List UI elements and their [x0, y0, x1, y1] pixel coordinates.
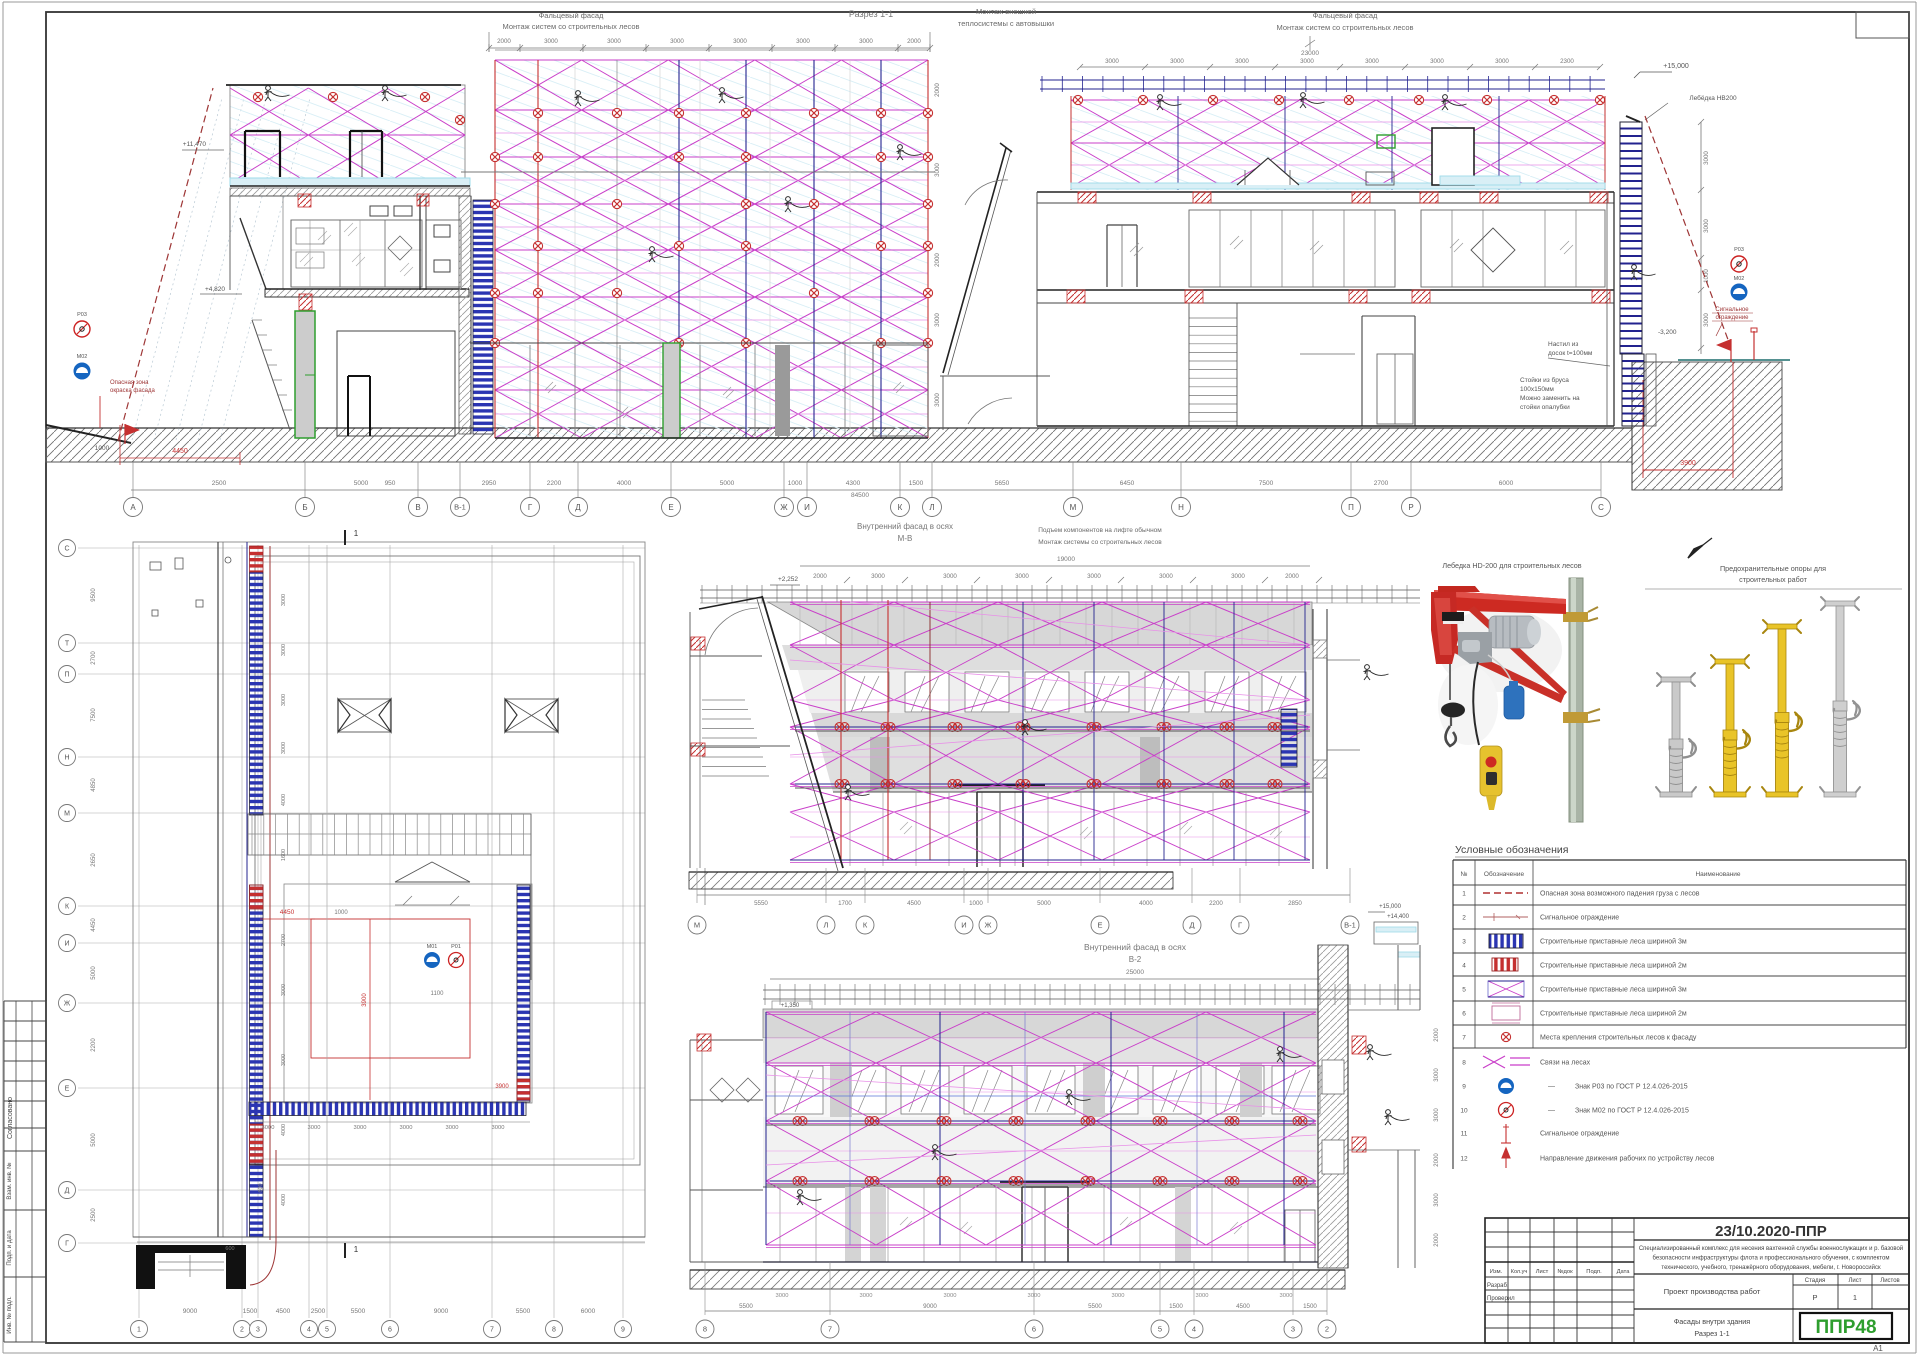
svg-text:1: 1	[1462, 891, 1466, 898]
svg-text:4: 4	[1462, 963, 1466, 970]
svg-text:Н: Н	[1178, 503, 1184, 512]
svg-text:2950: 2950	[482, 480, 497, 487]
svg-text:4000: 4000	[281, 1124, 287, 1136]
svg-text:1000: 1000	[969, 900, 983, 907]
svg-text:Р03: Р03	[1734, 247, 1744, 253]
svg-text:4000: 4000	[281, 1194, 287, 1206]
svg-text:9000: 9000	[183, 1308, 198, 1315]
svg-text:5000: 5000	[1037, 900, 1051, 907]
svg-text:И: И	[64, 941, 69, 948]
svg-text:П: П	[1348, 503, 1354, 512]
svg-text:4500: 4500	[907, 900, 921, 907]
svg-text:5550: 5550	[754, 900, 768, 907]
svg-text:3000: 3000	[670, 38, 684, 45]
svg-text:М02: М02	[1734, 276, 1745, 282]
svg-text:1000: 1000	[788, 480, 803, 487]
svg-text:25000: 25000	[1126, 969, 1144, 976]
svg-text:5: 5	[1158, 1325, 1162, 1334]
svg-text:окраска фасада: окраска фасада	[110, 388, 156, 394]
svg-text:Опасная зона возможного падени: Опасная зона возможного падения груза с …	[1540, 891, 1700, 898]
svg-text:9500: 9500	[91, 588, 97, 602]
svg-text:3900: 3900	[495, 1084, 509, 1090]
svg-text:2200: 2200	[547, 480, 562, 487]
svg-text:Проект производства работ: Проект производства работ	[1664, 1287, 1761, 1296]
svg-text:К: К	[863, 921, 868, 930]
svg-text:стойки опалубки: стойки опалубки	[1520, 403, 1570, 411]
svg-text:С: С	[64, 546, 69, 553]
svg-text:2000: 2000	[1434, 1153, 1440, 1167]
svg-text:Д: Д	[65, 1188, 70, 1195]
svg-text:3000: 3000	[776, 1293, 789, 1299]
svg-text:2000: 2000	[1285, 573, 1299, 580]
svg-text:+11,470: +11,470	[183, 141, 207, 148]
svg-text:Сигнальное ограждение: Сигнальное ограждение	[1540, 915, 1619, 922]
svg-text:Настил из: Настил из	[1548, 341, 1578, 348]
svg-text:К: К	[898, 503, 903, 512]
svg-text:3000: 3000	[446, 1125, 459, 1131]
svg-text:9000: 9000	[923, 1303, 937, 1310]
svg-text:4000: 4000	[281, 794, 287, 806]
svg-text:Связи на лесах: Связи на лесах	[1540, 1060, 1591, 1067]
svg-text:Лист: Лист	[1848, 1278, 1861, 1284]
svg-text:5500: 5500	[516, 1308, 531, 1315]
svg-text:2200: 2200	[91, 1038, 97, 1052]
svg-text:Взам. инв. №: Взам. инв. №	[6, 1162, 13, 1199]
svg-text:950: 950	[385, 480, 396, 487]
svg-text:2000: 2000	[934, 83, 941, 97]
svg-text:Лебедка HD-200 для строительны: Лебедка HD-200 для строительных лесов	[1442, 561, 1581, 570]
svg-text:Р01: Р01	[451, 944, 461, 950]
svg-text:Г: Г	[65, 1241, 69, 1248]
svg-text:4450: 4450	[280, 909, 295, 916]
svg-text:М: М	[694, 921, 700, 930]
svg-text:Фасады внутри здания: Фасады внутри здания	[1674, 1317, 1750, 1326]
svg-text:2000: 2000	[934, 253, 941, 267]
svg-text:7: 7	[490, 1327, 494, 1334]
svg-text:М: М	[64, 811, 70, 818]
svg-text:4850: 4850	[91, 778, 97, 792]
svg-text:И: И	[961, 921, 966, 930]
svg-text:+4,820: +4,820	[205, 286, 225, 293]
svg-text:+1,350: +1,350	[781, 1003, 800, 1009]
svg-text:3900: 3900	[362, 993, 368, 1007]
svg-text:Места крепления строительных л: Места крепления строительных лесов к фас…	[1540, 1035, 1697, 1042]
svg-text:2200: 2200	[1209, 900, 1223, 907]
svg-text:3000: 3000	[262, 1125, 275, 1131]
svg-text:Обозначение: Обозначение	[1484, 870, 1525, 878]
svg-text:3000: 3000	[934, 393, 941, 407]
svg-text:технического, учебного, тренаж: технического, учебного, тренажёрного обо…	[1661, 1264, 1881, 1271]
svg-text:Ж: Ж	[780, 503, 788, 512]
svg-text:12: 12	[1460, 1156, 1468, 1163]
svg-text:Стадия: Стадия	[1805, 1278, 1825, 1284]
svg-text:Изм.: Изм.	[1490, 1269, 1503, 1275]
svg-text:Стойки из бруса: Стойки из бруса	[1520, 376, 1569, 384]
svg-text:7: 7	[1462, 1035, 1466, 1042]
svg-text:1000: 1000	[95, 445, 110, 452]
svg-text:строительных работ: строительных работ	[1739, 575, 1807, 584]
svg-text:3000: 3000	[1430, 58, 1444, 65]
svg-text:Инв. № подл.: Инв. № подл.	[6, 1296, 13, 1334]
svg-text:5500: 5500	[1088, 1303, 1102, 1310]
svg-text:3000: 3000	[492, 1125, 505, 1131]
svg-text:4: 4	[307, 1327, 311, 1334]
svg-text:2650: 2650	[91, 853, 97, 867]
svg-text:1500: 1500	[909, 480, 924, 487]
svg-text:2000: 2000	[813, 573, 827, 580]
svg-text:Б: Б	[302, 503, 307, 512]
svg-text:Д: Д	[1189, 921, 1194, 930]
svg-text:Монтаж системы со строительных: Монтаж системы со строительных лесов	[1038, 539, 1162, 546]
svg-text:Строительные приставные леса ш: Строительные приставные леса шириной 3м	[1540, 986, 1687, 994]
svg-text:2000: 2000	[1434, 1233, 1440, 1247]
svg-text:+14,400: +14,400	[1387, 914, 1410, 920]
svg-text:10: 10	[1460, 1108, 1468, 1115]
svg-text:Наименование: Наименование	[1695, 871, 1740, 878]
svg-text:—: —	[1548, 1084, 1555, 1091]
svg-text:3000: 3000	[607, 38, 621, 45]
svg-text:Р: Р	[1812, 1293, 1817, 1302]
svg-text:1: 1	[1853, 1293, 1857, 1302]
svg-text:Строительные приставные леса ш: Строительные приставные леса шириной 2м	[1540, 962, 1687, 970]
svg-text:2500: 2500	[311, 1308, 326, 1315]
svg-text:5: 5	[1462, 987, 1466, 994]
svg-text:2: 2	[1325, 1325, 1329, 1334]
svg-text:3000: 3000	[934, 313, 941, 327]
svg-text:Г: Г	[528, 503, 533, 512]
svg-text:В: В	[415, 503, 420, 512]
svg-text:1000: 1000	[334, 910, 348, 916]
svg-text:3000: 3000	[281, 694, 287, 706]
svg-text:3000: 3000	[400, 1125, 413, 1131]
svg-text:4000: 4000	[1139, 900, 1153, 907]
svg-text:Монтаж систем со строительных: Монтаж систем со строительных лесов	[1277, 23, 1414, 32]
svg-text:Д: Д	[575, 503, 581, 512]
svg-text:6000: 6000	[581, 1308, 596, 1315]
svg-text:Листов: Листов	[1880, 1278, 1900, 1284]
svg-text:1700: 1700	[838, 900, 852, 907]
svg-text:2850: 2850	[1288, 900, 1302, 907]
svg-text:3000: 3000	[1434, 1108, 1440, 1122]
svg-text:5000: 5000	[91, 966, 97, 980]
svg-text:3: 3	[256, 1327, 260, 1334]
svg-text:3000: 3000	[281, 594, 287, 606]
svg-text:3000: 3000	[1703, 313, 1710, 327]
svg-text:Проверил: Проверил	[1487, 1296, 1515, 1302]
svg-text:Можно заменить на: Можно заменить на	[1520, 395, 1580, 402]
svg-text:2500: 2500	[212, 480, 227, 487]
svg-text:11: 11	[1461, 1131, 1468, 1138]
svg-text:3000: 3000	[860, 1293, 873, 1299]
svg-text:Согласовано: Согласовано	[7, 1097, 14, 1139]
svg-text:1500: 1500	[1169, 1303, 1183, 1310]
svg-text:Л: Л	[824, 921, 829, 930]
svg-text:Знак Р03 по ГОСТ Р 12.4.026-20: Знак Р03 по ГОСТ Р 12.4.026-2015	[1575, 1084, 1688, 1091]
svg-text:3000: 3000	[1231, 573, 1245, 580]
svg-text:3000: 3000	[1170, 58, 1184, 65]
svg-text:4300: 4300	[846, 480, 861, 487]
svg-text:2000: 2000	[1434, 1028, 1440, 1042]
svg-text:6000: 6000	[1499, 480, 1514, 487]
svg-text:теплосистемы с автовышки: теплосистемы с автовышки	[958, 19, 1054, 28]
svg-text:3000: 3000	[943, 573, 957, 580]
svg-text:3000: 3000	[1159, 573, 1173, 580]
svg-text:досок t=100мм: досок t=100мм	[1548, 350, 1593, 357]
svg-text:8: 8	[703, 1325, 707, 1334]
svg-text:Ж: Ж	[64, 1001, 71, 1008]
svg-text:3000: 3000	[1703, 151, 1710, 165]
svg-text:3000: 3000	[944, 1293, 957, 1299]
svg-text:3000: 3000	[1196, 1293, 1209, 1299]
svg-text:Фальцевый фасад: Фальцевый фасад	[1313, 11, 1378, 20]
svg-text:Знак М02 по ГОСТ Р 12.4.026-20: Знак М02 по ГОСТ Р 12.4.026-2015	[1575, 1108, 1689, 1115]
svg-text:3000: 3000	[934, 163, 941, 177]
svg-text:4450: 4450	[91, 918, 97, 932]
svg-text:6450: 6450	[1120, 480, 1135, 487]
svg-text:7500: 7500	[91, 708, 97, 722]
svg-text:Лебёдка НВ200: Лебёдка НВ200	[1689, 94, 1737, 102]
svg-text:3000: 3000	[281, 742, 287, 754]
svg-text:2300: 2300	[1560, 58, 1574, 65]
svg-text:3000: 3000	[544, 38, 558, 45]
svg-text:М-В: М-В	[898, 534, 913, 543]
svg-text:+15,000: +15,000	[1663, 63, 1689, 70]
svg-text:100х150мм: 100х150мм	[1520, 386, 1554, 393]
svg-text:Строительные приставные леса ш: Строительные приставные леса шириной 3м	[1540, 938, 1687, 946]
svg-text:Сигнальное ограждение: Сигнальное ограждение	[1540, 1131, 1619, 1138]
svg-text:Е: Е	[668, 503, 673, 512]
svg-text:П: П	[64, 672, 69, 679]
svg-text:6: 6	[388, 1327, 392, 1334]
svg-text:Условные обозначения: Условные обозначения	[1455, 844, 1568, 856]
svg-text:А1: А1	[1873, 1344, 1883, 1353]
svg-text:Предохранительные опоры для: Предохранительные опоры для	[1720, 564, 1826, 573]
svg-text:5500: 5500	[351, 1308, 366, 1315]
svg-text:Е: Е	[65, 1086, 70, 1093]
svg-text:А: А	[130, 503, 136, 512]
svg-text:Монтаж систем со строительных: Монтаж систем со строительных лесов	[503, 22, 640, 31]
svg-text:2500: 2500	[91, 1208, 97, 1222]
svg-text:4500: 4500	[276, 1308, 291, 1315]
svg-text:9: 9	[621, 1327, 625, 1334]
svg-text:3000: 3000	[859, 38, 873, 45]
svg-text:Монтаж внешней: Монтаж внешней	[976, 7, 1036, 16]
svg-text:2700: 2700	[1374, 480, 1389, 487]
svg-text:1500: 1500	[1303, 1303, 1317, 1310]
svg-text:23/10.2020-ППР: 23/10.2020-ППР	[1715, 1223, 1827, 1240]
svg-text:3000: 3000	[1105, 58, 1119, 65]
svg-text:Р03: Р03	[77, 312, 87, 318]
svg-text:Внутренний фасад в осях: Внутренний фасад в осях	[1084, 942, 1187, 952]
svg-text:5000: 5000	[91, 1133, 97, 1147]
svg-text:8: 8	[552, 1327, 556, 1334]
svg-text:1: 1	[354, 1245, 359, 1254]
svg-text:3000: 3000	[1280, 1293, 1293, 1299]
svg-text:3000: 3000	[1235, 58, 1249, 65]
svg-text:5650: 5650	[995, 480, 1010, 487]
svg-text:3000: 3000	[1703, 219, 1710, 233]
svg-text:И: И	[804, 503, 810, 512]
svg-text:84500: 84500	[851, 492, 869, 499]
svg-text:4000: 4000	[617, 480, 632, 487]
svg-text:Строительные приставные леса ш: Строительные приставные леса шириной 2м	[1540, 1010, 1687, 1018]
svg-text:М02: М02	[77, 354, 88, 360]
svg-text:1: 1	[354, 529, 359, 538]
svg-text:600: 600	[258, 1183, 264, 1192]
svg-text:3900: 3900	[1680, 460, 1696, 467]
svg-text:3: 3	[1462, 939, 1466, 946]
svg-text:3000: 3000	[1434, 1068, 1440, 1082]
svg-text:6: 6	[1462, 1011, 1466, 1018]
svg-text:М01: М01	[427, 944, 438, 950]
svg-text:3000: 3000	[281, 644, 287, 656]
svg-text:В-1: В-1	[1344, 921, 1356, 930]
svg-text:5500: 5500	[739, 1303, 753, 1310]
svg-text:Е: Е	[1097, 921, 1102, 930]
svg-text:+2,252: +2,252	[778, 576, 798, 583]
svg-text:Опасная зона: Опасная зона	[110, 380, 149, 386]
svg-text:М: М	[1070, 503, 1077, 512]
svg-text:1: 1	[137, 1327, 141, 1334]
svg-text:3000: 3000	[1300, 58, 1314, 65]
svg-text:3000: 3000	[1495, 58, 1509, 65]
svg-text:4: 4	[1192, 1325, 1196, 1334]
svg-text:ППР48: ППР48	[1815, 1317, 1876, 1338]
svg-text:7500: 7500	[1259, 480, 1274, 487]
svg-text:3000: 3000	[733, 38, 747, 45]
svg-text:Разрез 1-1: Разрез 1-1	[1694, 1329, 1729, 1338]
svg-text:2: 2	[240, 1327, 244, 1334]
svg-text:+15,000: +15,000	[1379, 904, 1402, 910]
svg-text:6: 6	[1032, 1325, 1036, 1334]
svg-text:5: 5	[325, 1327, 329, 1334]
svg-text:3000: 3000	[1434, 1193, 1440, 1207]
svg-text:С: С	[1598, 503, 1604, 512]
svg-text:Дата: Дата	[1617, 1269, 1631, 1275]
svg-text:Ж: Ж	[985, 921, 992, 930]
svg-text:3000: 3000	[1365, 58, 1379, 65]
svg-text:3: 3	[1291, 1325, 1295, 1334]
svg-text:3000: 3000	[354, 1125, 367, 1131]
svg-text:19000: 19000	[1057, 556, 1075, 563]
svg-text:В-2: В-2	[1129, 955, 1142, 964]
svg-text:В-1: В-1	[454, 503, 466, 512]
svg-text:Фальцевый фасад: Фальцевый фасад	[539, 11, 604, 20]
svg-text:8: 8	[1462, 1060, 1466, 1067]
svg-text:№док: №док	[1557, 1269, 1573, 1275]
svg-text:Г: Г	[1238, 921, 1242, 930]
svg-text:4500: 4500	[1236, 1303, 1250, 1310]
svg-text:Сигнальное: Сигнальное	[1715, 307, 1749, 313]
svg-text:Н: Н	[64, 755, 69, 762]
svg-text:Л: Л	[929, 503, 934, 512]
svg-text:600: 600	[225, 1246, 234, 1252]
svg-text:Кол.уч: Кол.уч	[1511, 1269, 1528, 1275]
svg-text:9: 9	[1462, 1084, 1466, 1091]
svg-text:9000: 9000	[434, 1308, 449, 1315]
svg-text:Р: Р	[1408, 503, 1413, 512]
svg-text:Подп.: Подп.	[1586, 1269, 1602, 1275]
svg-text:5000: 5000	[720, 480, 735, 487]
svg-text:7: 7	[828, 1325, 832, 1334]
svg-text:-3,200: -3,200	[1658, 329, 1677, 336]
svg-text:Разраб.: Разраб.	[1487, 1283, 1509, 1289]
svg-text:Подп. и дата: Подп. и дата	[7, 1230, 13, 1266]
svg-text:Специализированный комплекс дл: Специализированный комплекс для несения …	[1639, 1245, 1903, 1252]
svg-text:5000: 5000	[354, 480, 369, 487]
svg-text:Лист: Лист	[1536, 1269, 1549, 1275]
svg-text:1100: 1100	[431, 991, 445, 997]
svg-text:3000: 3000	[308, 1125, 321, 1131]
svg-text:2: 2	[1462, 915, 1466, 922]
svg-text:Направление движения рабочих п: Направление движения рабочих по устройст…	[1540, 1155, 1715, 1163]
svg-text:4450: 4450	[172, 448, 188, 455]
svg-text:Подъем компонентов на лифте об: Подъем компонентов на лифте обычном	[1038, 526, 1162, 534]
svg-text:3000: 3000	[796, 38, 810, 45]
svg-text:23000: 23000	[1301, 50, 1319, 57]
svg-text:2700: 2700	[91, 651, 97, 665]
svg-text:2000: 2000	[497, 38, 511, 45]
svg-text:безопасности инфраструктуры фл: безопасности инфраструктуры флота и проф…	[1653, 1256, 1890, 1262]
svg-text:2000: 2000	[907, 38, 921, 45]
svg-text:№: №	[1461, 871, 1468, 878]
svg-text:1500: 1500	[243, 1308, 258, 1315]
svg-text:Т: Т	[65, 641, 70, 648]
svg-text:3000: 3000	[871, 573, 885, 580]
svg-text:Внутренний фасад в осях: Внутренний фасад в осях	[857, 522, 953, 531]
svg-text:3000: 3000	[1087, 573, 1101, 580]
svg-text:3000: 3000	[1015, 573, 1029, 580]
svg-text:ограждение: ограждение	[1715, 315, 1749, 321]
svg-text:3000: 3000	[1112, 1293, 1125, 1299]
svg-text:Разрез 1-1: Разрез 1-1	[849, 9, 893, 19]
svg-text:—: —	[1548, 1108, 1555, 1115]
